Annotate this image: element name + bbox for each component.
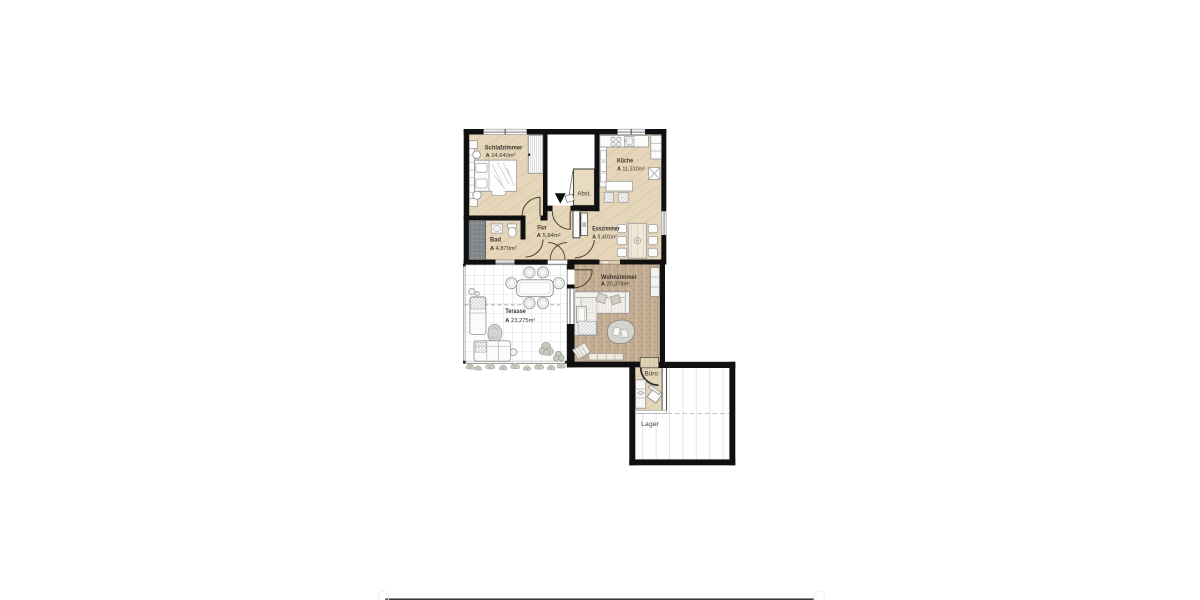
svg-text:Abst.: Abst.	[578, 192, 592, 198]
svg-text:Esszimmer: Esszimmer	[592, 226, 620, 233]
svg-text:Terasse: Terasse	[505, 308, 526, 315]
svg-text:Büro: Büro	[645, 371, 659, 377]
svg-text:Flur: Flur	[537, 225, 547, 232]
svg-text:A 4,870m²: A 4,870m²	[490, 246, 517, 252]
svg-text:A 23,275m²: A 23,275m²	[505, 318, 535, 324]
svg-text:A 5,84m²: A 5,84m²	[537, 233, 561, 239]
svg-text:A 20,378m²: A 20,378m²	[601, 282, 630, 288]
svg-text:Wohnzimmer: Wohnzimmer	[601, 274, 638, 281]
svg-text:A 14,640m²: A 14,640m²	[486, 153, 516, 159]
svg-text:Bad: Bad	[490, 237, 501, 244]
svg-text:Schlafzimmer: Schlafzimmer	[485, 144, 523, 151]
svg-text:A 11,310m²: A 11,310m²	[617, 167, 645, 173]
svg-text:Küche: Küche	[617, 157, 634, 164]
svg-text:A 9,401m²: A 9,401m²	[592, 234, 617, 240]
svg-text:Lager: Lager	[641, 421, 660, 428]
